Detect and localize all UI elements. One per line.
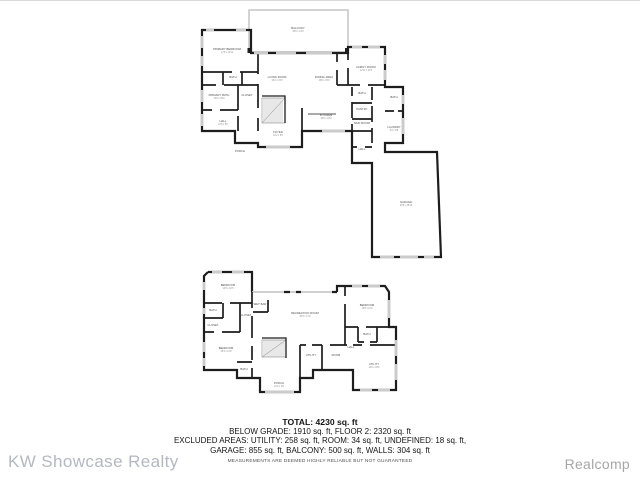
- floor2-stairs: [262, 96, 285, 123]
- room-dims: 12'11 x 13'5: [360, 70, 373, 72]
- below-grade-stairs: [262, 338, 286, 358]
- room-dims: 12'9 x 8'10: [214, 98, 226, 100]
- room-dims: 15'2 x 11'8: [221, 351, 233, 353]
- room-label: PORCH: [274, 381, 284, 385]
- room-label: BEDROOM: [219, 346, 234, 350]
- room-label: RECREATION ROOM: [291, 311, 319, 315]
- room-dims: 10'2 x 6'5: [273, 135, 283, 137]
- room-label: BATH: [209, 308, 216, 312]
- room-label: BEDROOM: [221, 283, 236, 287]
- room-label: PRIMARY BEDROOM: [213, 47, 242, 51]
- room-dims: 14'0 x 18'5: [369, 367, 381, 369]
- room-dims: 17'8 x 14'11: [221, 52, 234, 54]
- room-label: BATH: [363, 332, 370, 336]
- room-dims: 29'6 x 28'10: [400, 205, 413, 207]
- room-label: UTILITY: [369, 362, 380, 366]
- total-area-text: TOTAL: 4230 sq. ft: [0, 417, 640, 427]
- room-label: CLOSET: [207, 323, 219, 327]
- room-dims: 16'4 x 15'0: [272, 80, 284, 82]
- area-line-grades: BELOW GRADE: 1910 sq. ft, FLOOR 2: 2320 …: [0, 427, 640, 436]
- room-label: GARAGE: [400, 200, 412, 204]
- watermark-realcomp: Realcomp: [565, 456, 630, 472]
- area-line-excluded: EXCLUDED AREAS: UTILITY: 258 sq. ft, ROO…: [0, 436, 640, 445]
- room-dims: 6'2 x 9'8: [390, 130, 399, 132]
- room-label: LIVING ROOM: [268, 75, 287, 79]
- room-label: DINING AREA: [315, 75, 333, 79]
- room-label: BATH: [358, 91, 365, 95]
- room-dims: 13'4 x 4'6: [274, 386, 284, 388]
- room-label: ROOM: [332, 353, 341, 357]
- room-label: BATH: [390, 95, 397, 99]
- room-label: HALL: [219, 119, 226, 123]
- room-label: PANTRY: [356, 107, 367, 111]
- floor2-exterior-walls: [202, 30, 441, 257]
- room-dims: 14'6 x 5'8: [218, 124, 228, 126]
- room-label: CLOSET: [241, 93, 253, 97]
- room-label: HALL: [358, 147, 365, 151]
- room-label: WET BAR: [254, 302, 267, 306]
- room-dims: 15'8 x 15'0: [319, 80, 331, 82]
- room-label: UTILITY: [306, 353, 317, 357]
- room-label: BATH: [229, 75, 236, 79]
- watermark-broker: KW Showcase Realty: [8, 452, 179, 472]
- floor-plan-svg: BALCONY35'0 x 14'3PRIMARY BEDROOM17'8 x …: [0, 0, 640, 480]
- room-label: PRIMARY BATH: [209, 93, 230, 97]
- room-label: BEDROOM: [360, 303, 375, 307]
- room-label: FAMILY ROOM: [356, 65, 376, 69]
- room-label: BATH: [240, 367, 247, 371]
- room-dims: 30'2 x 17'9: [300, 316, 312, 318]
- room-label: KITCHEN: [320, 113, 332, 117]
- room-label: HALL: [347, 345, 354, 349]
- room-label: CLOSET: [240, 313, 252, 317]
- room-dims: 14'5 x 10'5: [223, 288, 235, 290]
- room-dims: 16'0 x 10'9: [321, 118, 333, 120]
- room-labels: BALCONY35'0 x 14'3PRIMARY BEDROOM17'8 x …: [207, 26, 412, 388]
- room-label: LAUNDRY: [387, 125, 400, 129]
- room-dims: 12'8 x 11'6: [362, 308, 374, 310]
- floor-plan-page: { "summary": { "total": "TOTAL: 4230 sq.…: [0, 0, 640, 480]
- room-label: PORCH: [235, 149, 245, 153]
- room-label: BALCONY: [291, 26, 305, 30]
- room-label: MUD ROOM: [354, 121, 371, 125]
- below-grade-interior-walls: [204, 286, 396, 378]
- room-dims: 35'0 x 14'3: [293, 31, 305, 33]
- room-label: FOYER: [273, 130, 283, 134]
